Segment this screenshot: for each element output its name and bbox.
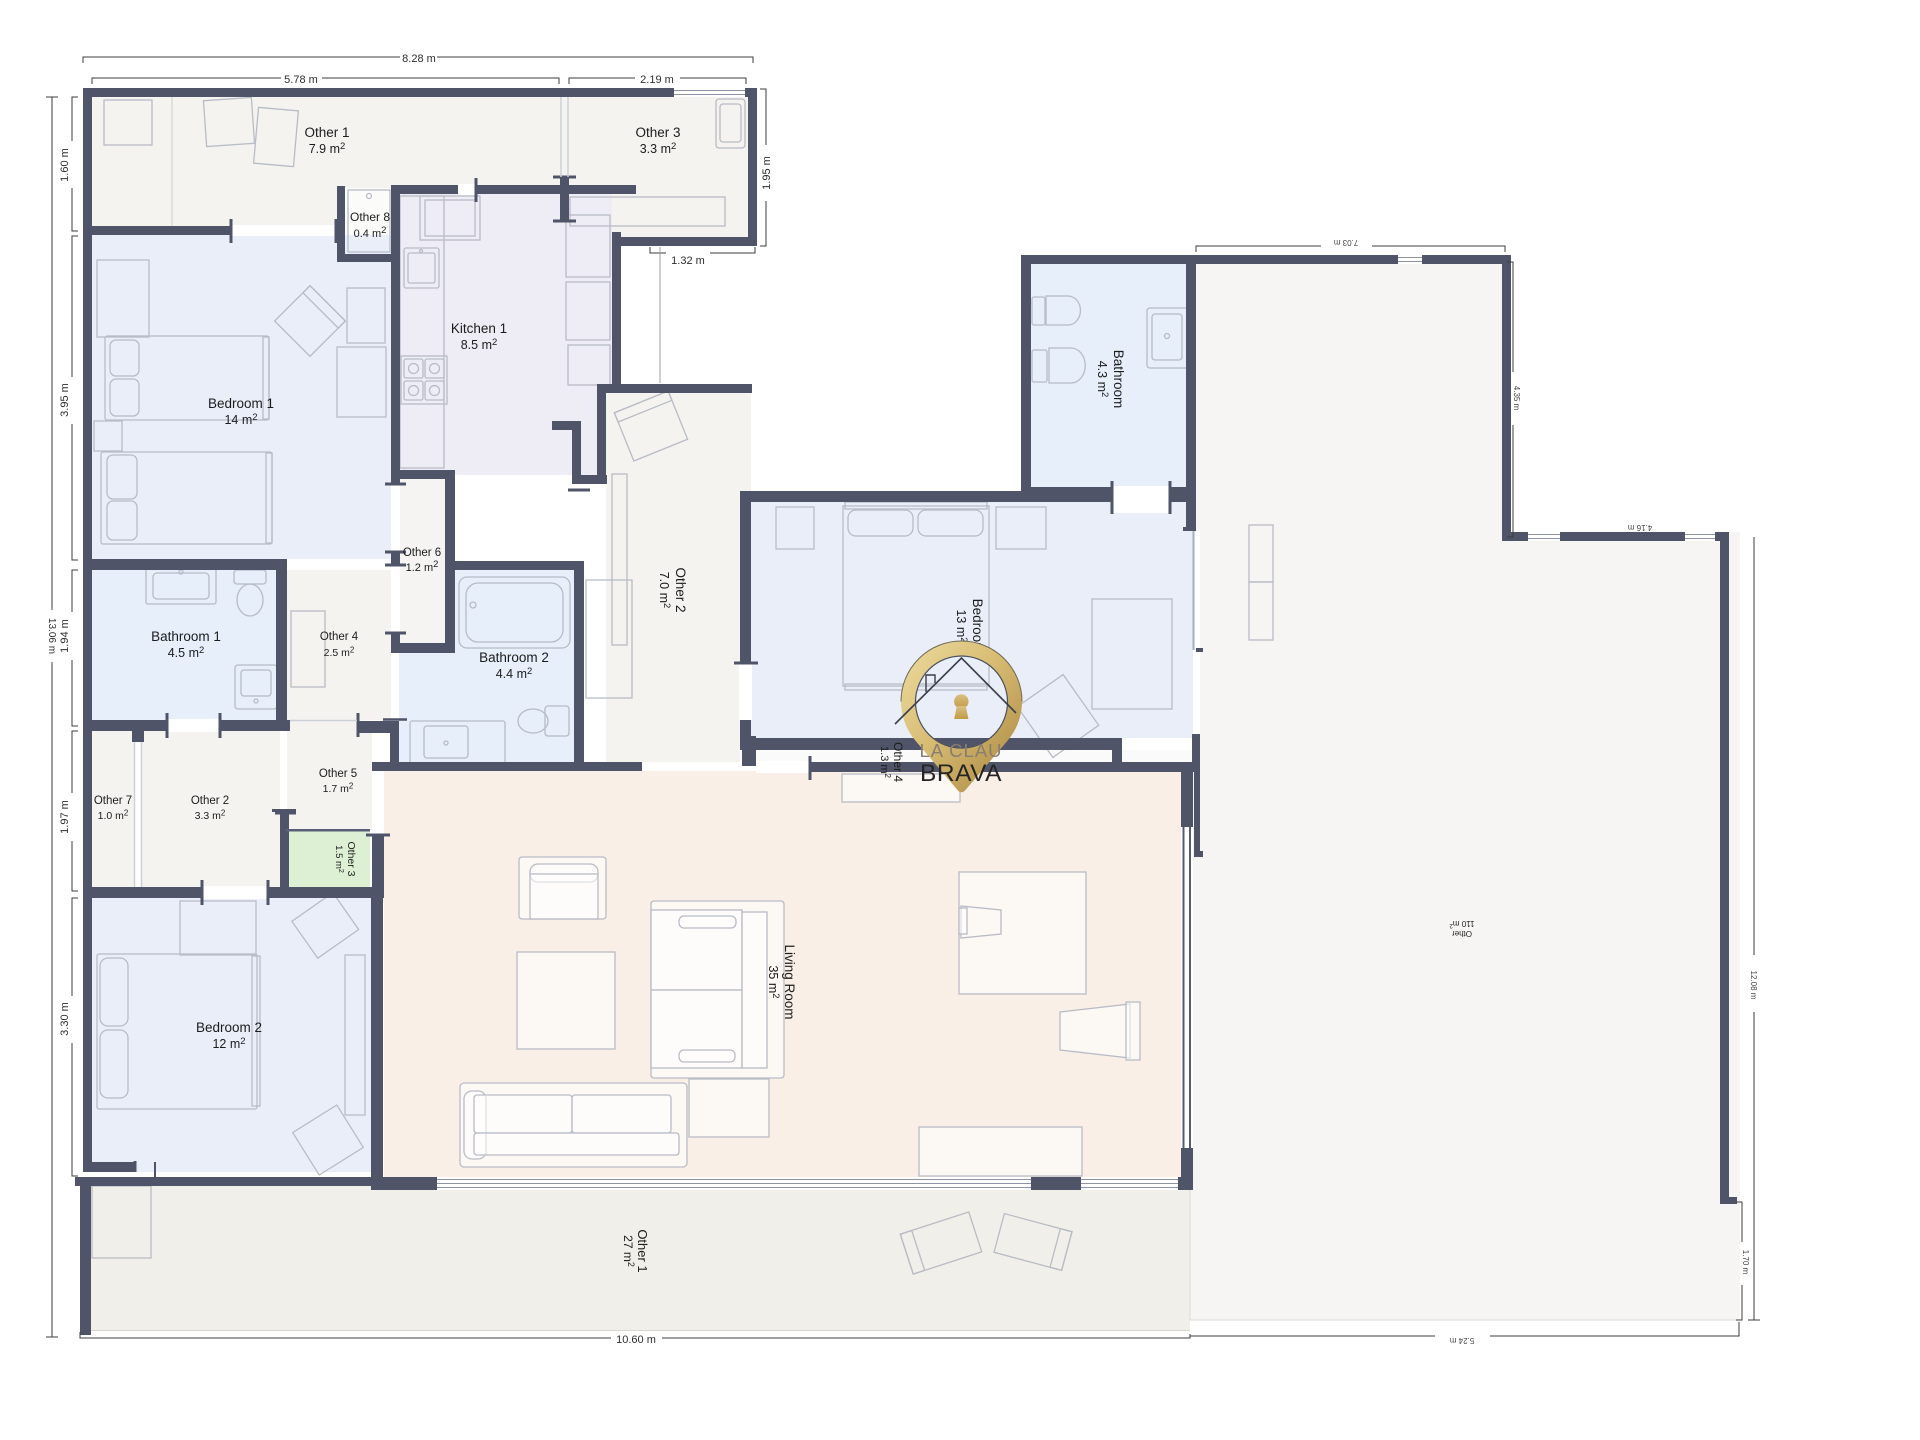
svg-text:1.60 m: 1.60 m [59,148,71,182]
svg-text:4.3 m2: 4.3 m2 [1095,361,1110,398]
svg-text:Bathroom 1: Bathroom 1 [151,629,221,644]
svg-text:Other 5: Other 5 [319,768,357,780]
svg-text:Other 3: Other 3 [345,841,357,876]
svg-text:1.97 m: 1.97 m [59,800,71,834]
svg-text:1.94 m: 1.94 m [59,619,71,653]
svg-text:Other 1: Other 1 [304,125,349,140]
svg-text:Bathroom 2: Bathroom 2 [479,650,549,665]
svg-text:Other 8: Other 8 [350,210,390,224]
svg-text:4.16 m: 4.16 m [1627,523,1652,532]
svg-text:4.5 m2: 4.5 m2 [168,645,205,660]
svg-text:BRAVA: BRAVA [920,760,1002,787]
svg-text:4.4 m2: 4.4 m2 [496,666,533,681]
svg-text:Bedroom 2: Bedroom 2 [196,1020,262,1035]
svg-text:1.5 m2: 1.5 m2 [333,845,344,873]
svg-text:3.95 m: 3.95 m [59,383,71,417]
svg-text:1.95 m: 1.95 m [761,156,773,190]
svg-text:Other 4: Other 4 [320,631,359,643]
svg-text:1.32 m: 1.32 m [671,255,705,267]
svg-text:Living Room: Living Room [782,944,797,1019]
svg-text:8.28 m: 8.28 m [402,53,436,65]
svg-text:5.24 m: 5.24 m [1449,1336,1474,1345]
svg-text:4.35 m: 4.35 m [1512,386,1521,411]
svg-text:3.3 m2: 3.3 m2 [640,141,677,156]
svg-text:Other 6: Other 6 [403,547,441,559]
svg-text:2.19 m: 2.19 m [640,74,674,86]
svg-text:Bathroom: Bathroom [1111,350,1126,409]
svg-text:3.30 m: 3.30 m [59,1002,71,1036]
svg-text:Other 2: Other 2 [191,795,229,807]
svg-text:1.70 m: 1.70 m [1741,1250,1750,1275]
svg-text:Other: Other [1452,929,1472,938]
svg-text:Other 7: Other 7 [94,795,132,807]
svg-text:10.60 m: 10.60 m [616,1334,656,1346]
svg-text:7.0 m2: 7.0 m2 [657,572,672,609]
svg-text:5.78 m: 5.78 m [284,74,318,86]
svg-text:7.03 m: 7.03 m [1333,238,1358,247]
svg-text:12.08 m: 12.08 m [1749,971,1758,1000]
svg-text:7.9 m2: 7.9 m2 [309,141,346,156]
svg-text:Bedroom 1: Bedroom 1 [208,396,274,411]
svg-text:Other 3: Other 3 [635,125,680,140]
svg-text:Other 4: Other 4 [891,742,905,782]
svg-text:Other 1: Other 1 [635,1229,650,1272]
svg-text:Other 2: Other 2 [673,567,688,612]
svg-text:Kitchen 1: Kitchen 1 [451,321,507,336]
svg-text:13.06 m: 13.06 m [46,618,57,654]
svg-text:8.5 m2: 8.5 m2 [461,337,498,352]
svg-text:LA CLAU: LA CLAU [919,740,1002,761]
